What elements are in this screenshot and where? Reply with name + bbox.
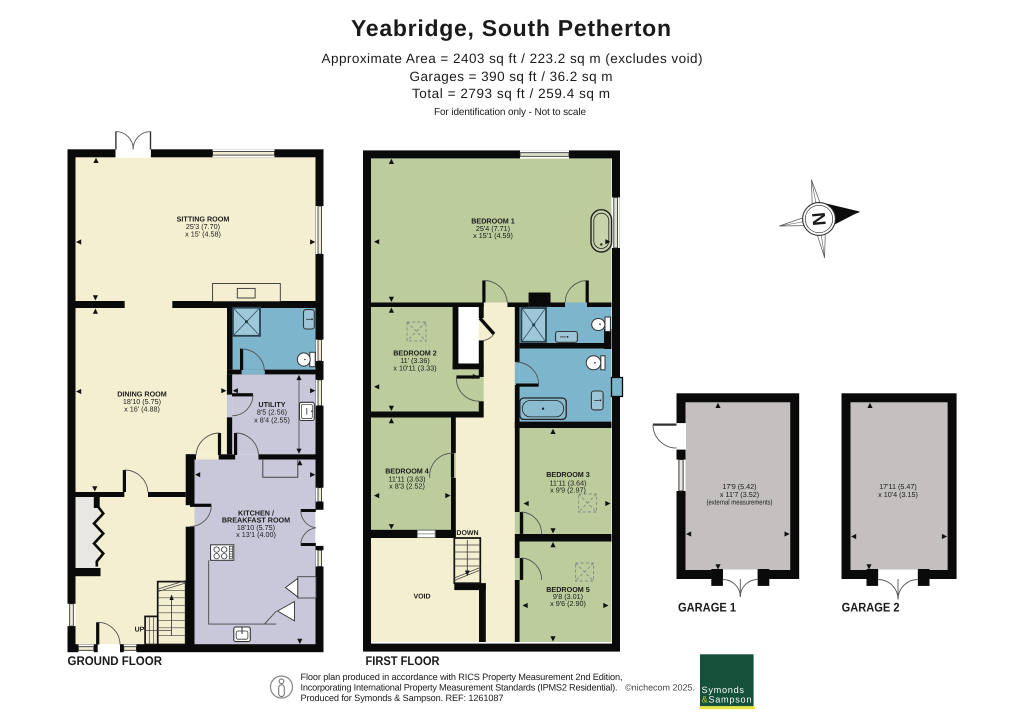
svg-text:GARAGE 2: GARAGE 2 (842, 601, 900, 615)
svg-text:Symonds: Symonds (702, 685, 745, 695)
svg-text:Approximate Area = 2403 sq ft: Approximate Area = 2403 sq ft / 223.2 sq… (322, 51, 703, 66)
svg-text:BEDROOM 3: BEDROOM 3 (546, 470, 590, 479)
svg-text:©nichecom 2025.: ©nichecom 2025. (625, 683, 695, 693)
svg-text:Produced for Symonds & Sampson: Produced for Symonds & Sampson. REF: 126… (301, 693, 504, 703)
svg-text:x 10'11 (3.33): x 10'11 (3.33) (393, 364, 436, 373)
svg-text:x 10'4 (3.15): x 10'4 (3.15) (878, 490, 918, 499)
svg-text:DOWN: DOWN (456, 530, 478, 537)
svg-text:For identification only - Not: For identification only - Not to scale (434, 107, 586, 118)
svg-text:x 16' (4.88): x 16' (4.88) (124, 405, 160, 414)
svg-text:x 13'1 (4.00): x 13'1 (4.00) (236, 530, 276, 539)
svg-text:Incorporating International Pr: Incorporating International Property Mea… (301, 683, 618, 693)
svg-text:Floor plan produced in accorda: Floor plan produced in accordance with R… (301, 672, 623, 682)
svg-text:x 15'1 (4.59): x 15'1 (4.59) (473, 231, 513, 240)
svg-text:x 15' (4.58): x 15' (4.58) (185, 230, 221, 239)
svg-text:Total = 2793 sq ft / 259.4 sq: Total = 2793 sq ft / 259.4 sq m (412, 86, 610, 101)
svg-text:(external measurements): (external measurements) (707, 497, 773, 506)
svg-text:Garages = 390 sq ft / 36.2 sq: Garages = 390 sq ft / 36.2 sq m (410, 69, 613, 84)
svg-text:x 9'9 (2.97): x 9'9 (2.97) (550, 486, 586, 495)
svg-text:x 8'4 (2.55): x 8'4 (2.55) (254, 415, 290, 424)
svg-text:FIRST FLOOR: FIRST FLOOR (366, 654, 440, 668)
svg-text:Yeabridge, South Petherton: Yeabridge, South Petherton (351, 15, 671, 41)
svg-text:N: N (808, 211, 830, 226)
svg-text:&Sampson: &Sampson (702, 695, 752, 705)
svg-text:x 8'3 (2.52): x 8'3 (2.52) (389, 482, 425, 491)
svg-text:GROUND FLOOR: GROUND FLOOR (68, 654, 163, 668)
svg-text:VOID: VOID (413, 594, 430, 601)
svg-text:GARAGE 1: GARAGE 1 (678, 601, 736, 615)
svg-text:UP: UP (135, 627, 145, 634)
svg-text:x 9'6 (2.90): x 9'6 (2.90) (550, 599, 586, 608)
